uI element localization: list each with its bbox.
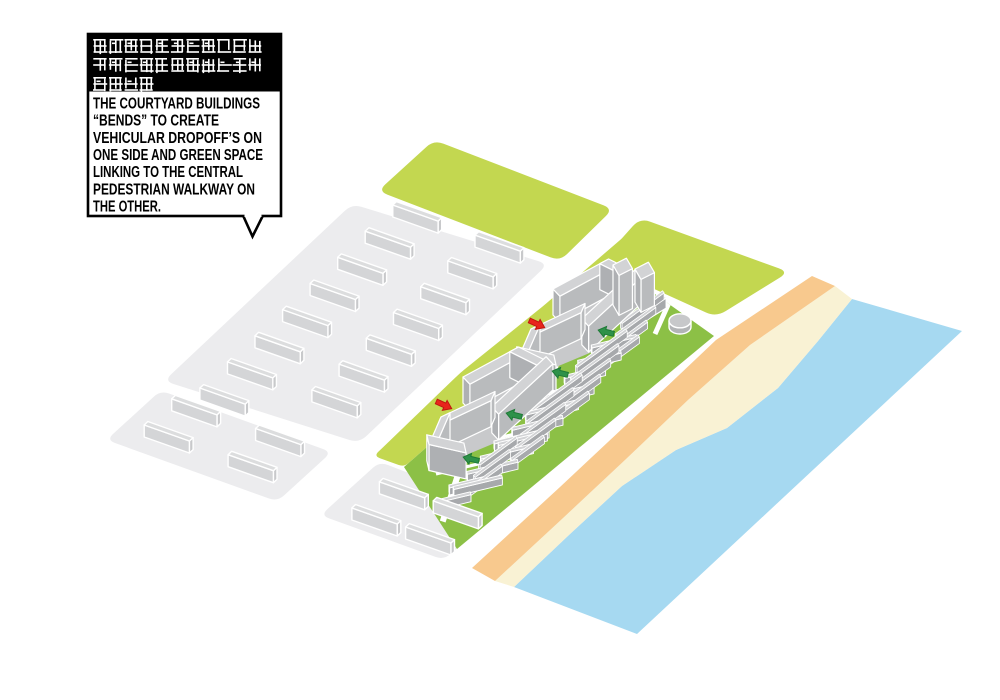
svg-text:ONE SIDE AND GREEN SPACE: ONE SIDE AND GREEN SPACE	[93, 147, 263, 164]
svg-text:“BENDS” TO CREATE: “BENDS” TO CREATE	[93, 113, 219, 130]
svg-text:PEDESTRIAN WALKWAY ON: PEDESTRIAN WALKWAY ON	[93, 181, 255, 198]
svg-text:THE OTHER.: THE OTHER.	[93, 198, 161, 215]
svg-text:VEHICULAR DROPOFF’S ON: VEHICULAR DROPOFF’S ON	[93, 130, 262, 147]
svg-text:LINKING TO THE CENTRAL: LINKING TO THE CENTRAL	[93, 164, 243, 181]
svg-text:THE COURTYARD BUILDINGS: THE COURTYARD BUILDINGS	[93, 96, 260, 113]
